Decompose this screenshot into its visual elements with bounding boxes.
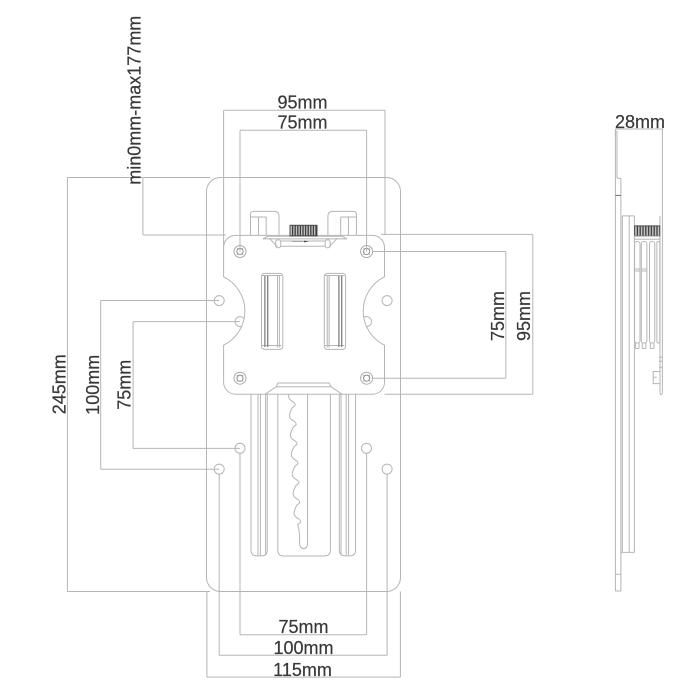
svg-text:75mm: 75mm [114, 360, 134, 410]
svg-text:95mm: 95mm [514, 291, 534, 341]
svg-text:115mm: 115mm [273, 660, 332, 680]
svg-text:95mm: 95mm [277, 93, 327, 113]
svg-text:75mm: 75mm [278, 617, 328, 637]
svg-text:245mm: 245mm [50, 354, 70, 414]
svg-text:28mm: 28mm [615, 112, 665, 132]
svg-text:75mm: 75mm [488, 291, 508, 341]
svg-text:min0mm-max177mm: min0mm-max177mm [124, 16, 144, 185]
svg-text:100mm: 100mm [83, 355, 103, 415]
svg-text:75mm: 75mm [277, 113, 327, 133]
svg-text:100mm: 100mm [273, 638, 333, 658]
